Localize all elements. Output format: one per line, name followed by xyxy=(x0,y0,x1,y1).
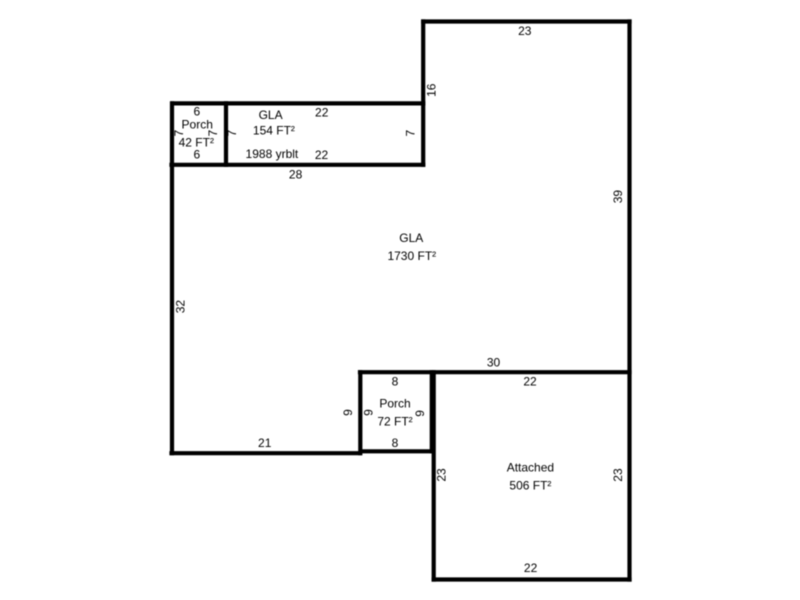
svg-text:23: 23 xyxy=(611,468,625,482)
svg-text:8: 8 xyxy=(392,436,399,450)
svg-text:9: 9 xyxy=(413,410,427,417)
svg-text:GLA: GLA xyxy=(259,108,283,122)
svg-text:7: 7 xyxy=(404,130,418,137)
svg-text:22: 22 xyxy=(315,148,329,162)
svg-text:1730 FT²: 1730 FT² xyxy=(387,249,436,263)
svg-text:8: 8 xyxy=(392,375,399,389)
svg-text:154 FT²: 154 FT² xyxy=(253,124,295,138)
svg-text:6: 6 xyxy=(194,148,201,162)
svg-text:GLA: GLA xyxy=(399,231,423,245)
svg-text:Porch: Porch xyxy=(379,397,410,411)
svg-text:Attached: Attached xyxy=(507,461,554,475)
svg-text:22: 22 xyxy=(523,375,537,389)
svg-text:22: 22 xyxy=(524,561,538,575)
svg-text:6: 6 xyxy=(194,105,201,119)
svg-text:39: 39 xyxy=(611,190,625,204)
svg-text:22: 22 xyxy=(315,105,329,119)
svg-text:23: 23 xyxy=(434,468,448,482)
svg-text:28: 28 xyxy=(289,167,303,181)
svg-text:Porch: Porch xyxy=(182,118,213,132)
svg-text:506 FT²: 506 FT² xyxy=(509,478,551,492)
svg-text:32: 32 xyxy=(174,300,188,314)
svg-text:9: 9 xyxy=(362,409,376,416)
svg-text:21: 21 xyxy=(258,436,272,450)
svg-text:1988 yrblt: 1988 yrblt xyxy=(246,147,299,161)
svg-text:72 FT²: 72 FT² xyxy=(377,415,412,429)
svg-text:7: 7 xyxy=(225,130,239,137)
svg-text:9: 9 xyxy=(341,409,355,416)
svg-text:16: 16 xyxy=(425,83,439,97)
svg-text:30: 30 xyxy=(487,355,501,369)
svg-text:23: 23 xyxy=(518,24,532,38)
